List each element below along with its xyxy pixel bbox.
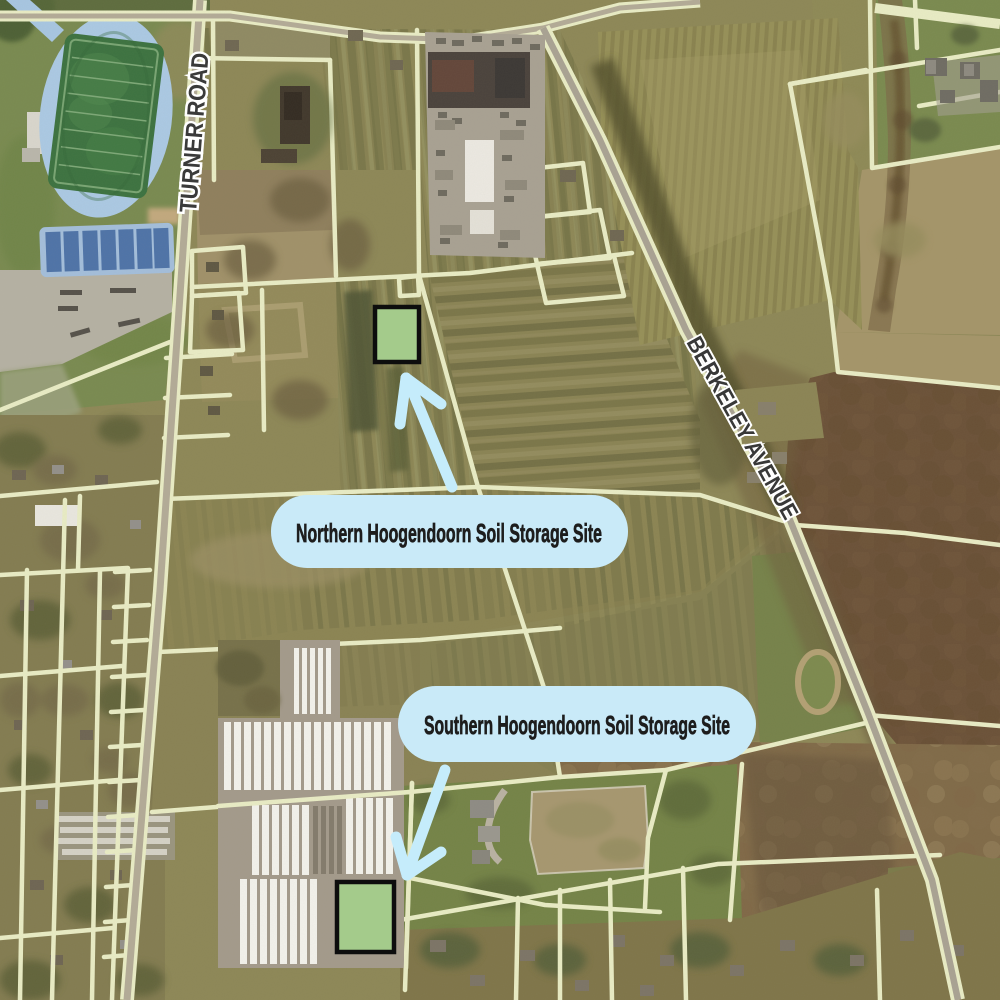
svg-text:Northern Hoogendoorn Soil Stor: Northern Hoogendoorn Soil Storage Site [296, 518, 602, 548]
svg-text:Southern Hoogendoorn Soil Stor: Southern Hoogendoorn Soil Storage Site [424, 710, 730, 740]
